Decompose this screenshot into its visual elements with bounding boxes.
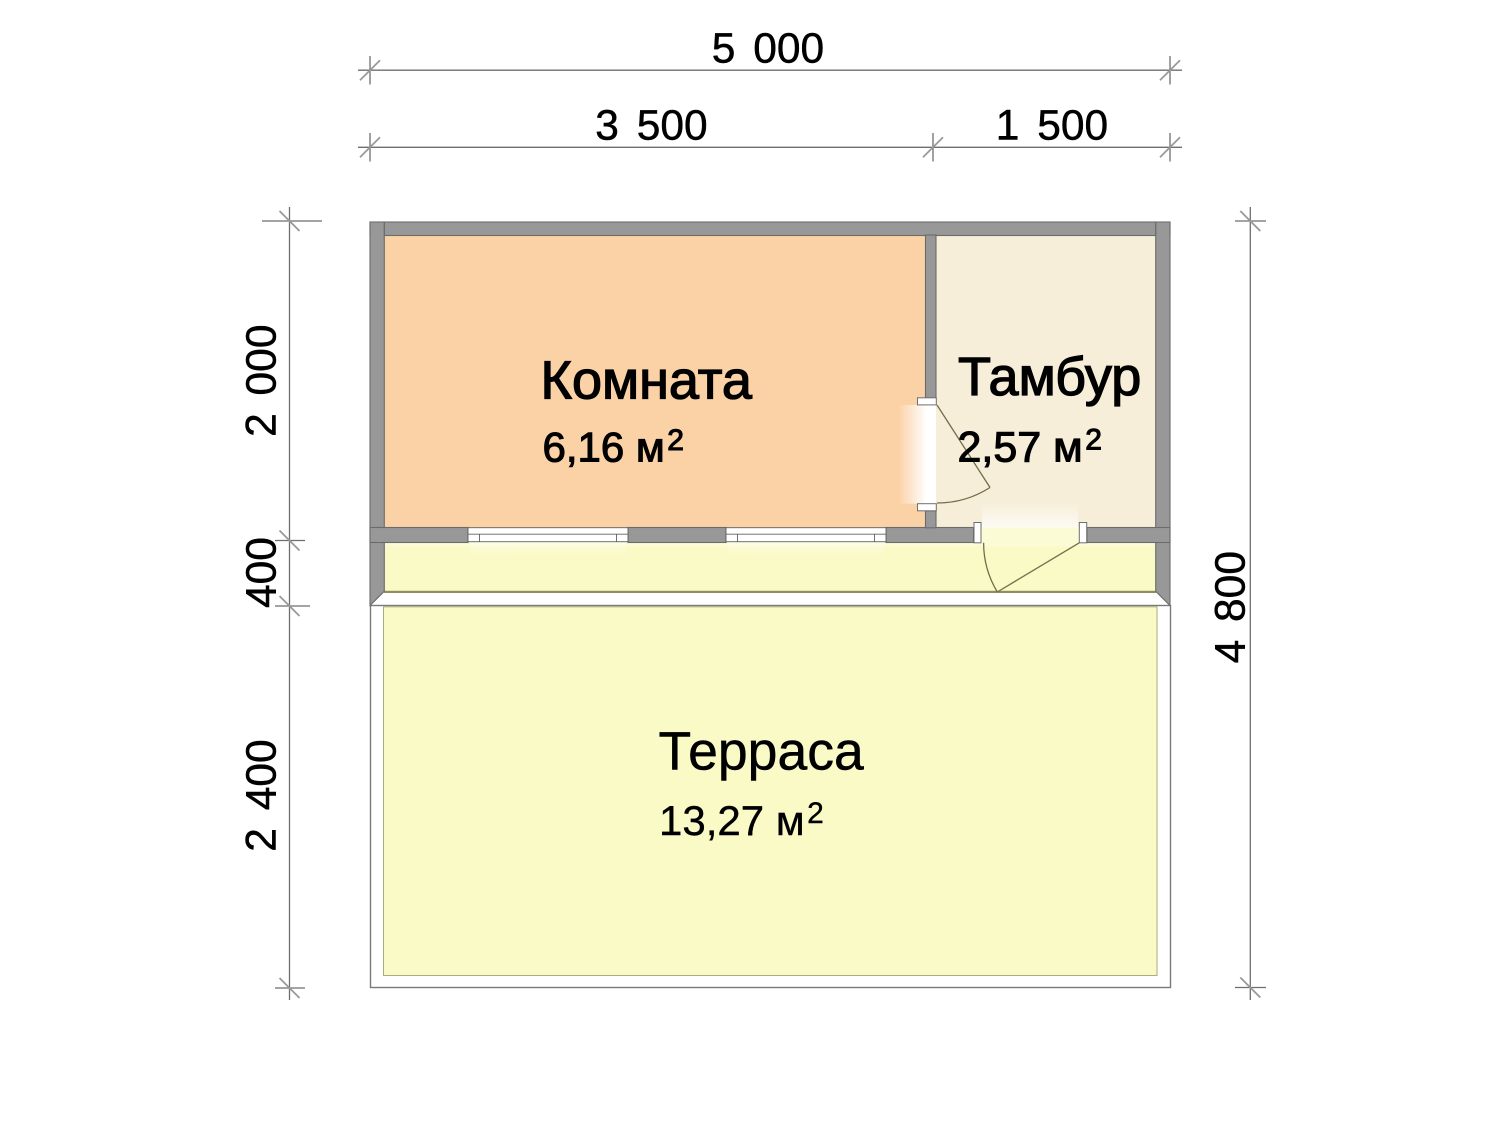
svg-text:13,27 м2: 13,27 м2	[659, 797, 824, 844]
svg-text:Терраса: Терраса	[659, 723, 864, 782]
svg-text:2,57 м2: 2,57 м2	[958, 424, 1102, 472]
svg-text:4 800: 4 800	[1208, 551, 1255, 663]
svg-text:2 000: 2 000	[239, 325, 286, 437]
svg-text:5 000: 5 000	[712, 26, 824, 73]
svg-text:1 500: 1 500	[996, 103, 1108, 150]
svg-text:3 500: 3 500	[595, 103, 707, 150]
svg-text:Тамбур: Тамбур	[958, 347, 1141, 407]
svg-text:2 400: 2 400	[239, 739, 286, 851]
svg-text:6,16 м2: 6,16 м2	[543, 424, 684, 471]
svg-text:Комната: Комната	[541, 351, 753, 411]
svg-text:400: 400	[239, 537, 286, 608]
